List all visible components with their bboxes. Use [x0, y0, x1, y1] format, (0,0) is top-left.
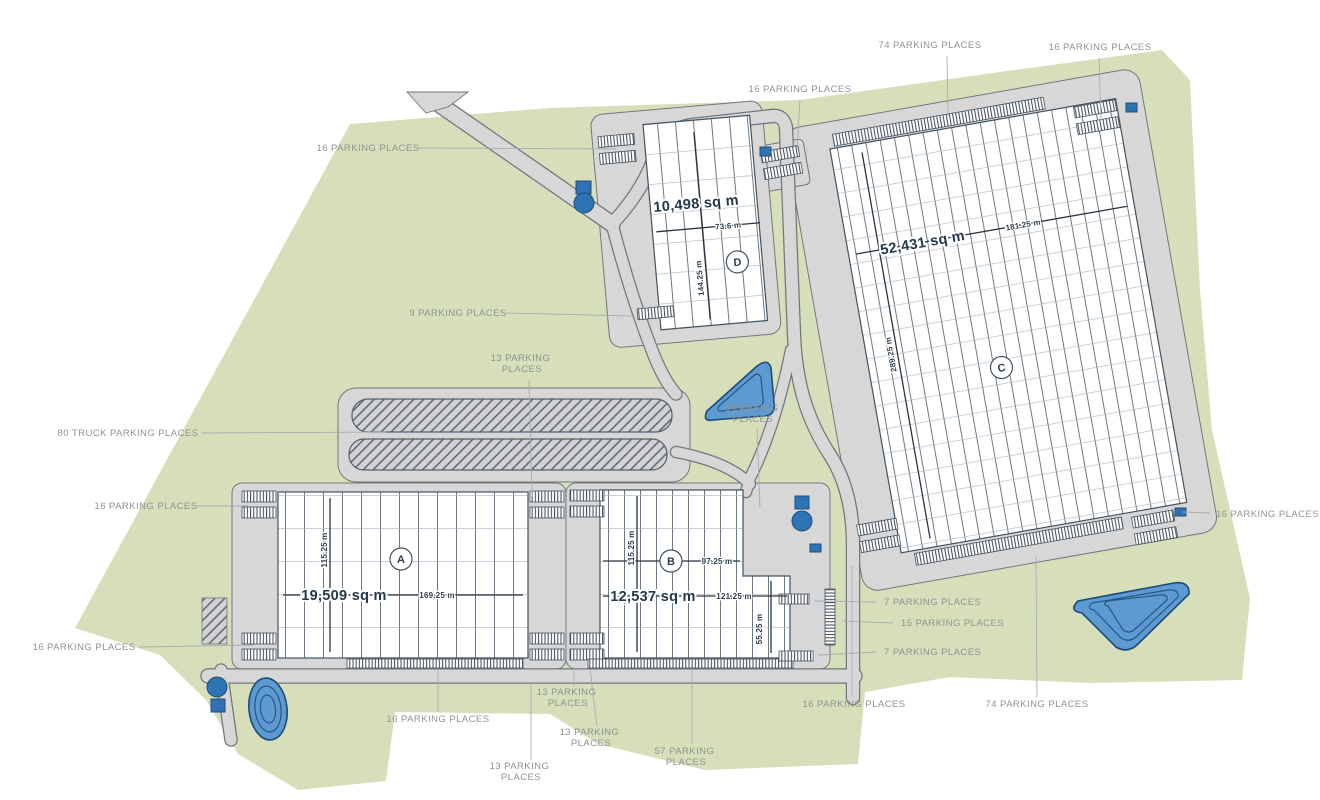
annotation-label: 16 PARKING PLACES — [802, 699, 905, 710]
annotation-label: 16 PARKING PLACES — [316, 143, 419, 154]
annotation-line2: PLACES — [501, 772, 541, 783]
annotation-label: 16 PARKING PLACES — [94, 501, 197, 512]
hydrant-marker — [760, 147, 771, 156]
annotation-line2: PLACES — [733, 414, 773, 425]
building-a-area: 19,509 sq m — [301, 588, 387, 604]
annotation-line2: PLACES — [502, 364, 542, 375]
annotation-label: 16 PARKING PLACES — [1048, 42, 1151, 53]
tank-marker — [576, 181, 591, 194]
building-b-depth: 115.25 m — [627, 531, 636, 566]
annotation-label: 16 PARKING PLACES — [1216, 509, 1319, 520]
hydrant-marker — [810, 544, 821, 552]
annotation-label: 16 PARKING PLACES — [748, 84, 851, 95]
building-b-wing-depth: 55.25 m — [755, 614, 764, 645]
building-a-length: 169.25 m — [419, 591, 454, 600]
pump-marker — [207, 677, 227, 697]
building-a-depth: 115.25 m — [320, 533, 329, 568]
annotation-line1: 13 PARKING — [490, 761, 550, 772]
annotation-line1: 6 PARKING — [724, 403, 778, 414]
reserved-hatch-area — [202, 598, 227, 644]
annotation-line1: 13 PARKING — [491, 353, 551, 364]
pump-marker — [574, 193, 594, 213]
building-b-mid-length: 97.25 m — [702, 557, 733, 566]
annotation-label: 74 PARKING PLACES — [878, 40, 981, 51]
annotation-label: 16 PARKING PLACES — [32, 642, 135, 653]
annotation-label: 16 PARKING PLACES — [386, 714, 489, 725]
hydrant-marker — [1126, 103, 1137, 112]
annotation-label: 7 PARKING PLACES — [884, 647, 981, 658]
annotation-line2: PLACES — [548, 698, 588, 709]
tank-marker — [795, 496, 809, 509]
tank-marker — [211, 699, 225, 712]
annotation-label: 13 PARKING PLACES — [490, 761, 553, 783]
annotation-line2: PLACES — [666, 757, 706, 768]
site-plan-canvas: 115.25 m 19,509 sq m 169.25 m A 115.25 m… — [0, 0, 1320, 800]
annotation-line1: 13 PARKING — [560, 727, 620, 738]
building-b-length: 121.25 m — [716, 592, 751, 601]
building-a-letter: A — [397, 554, 405, 566]
annotation-label: 9 PARKING PLACES — [409, 308, 506, 319]
annotation-line2: PLACES — [571, 738, 611, 749]
building-b-letter: B — [667, 556, 675, 568]
annotation-label: 80 TRUCK PARKING PLACES — [58, 428, 199, 439]
site-plan: 115.25 m 19,509 sq m 169.25 m A 115.25 m… — [0, 0, 1320, 800]
pump-marker — [792, 511, 812, 531]
building-d-letter: D — [733, 257, 742, 270]
annotation-line1: 13 PARKING — [537, 687, 597, 698]
annotation-line1: 57 PARKING — [655, 746, 715, 757]
building-a: 115.25 m 19,509 sq m 169.25 m A — [242, 491, 564, 668]
annotation-label: 7 PARKING PLACES — [884, 597, 981, 608]
building-b-area: 12,537 sq m — [610, 589, 696, 605]
annotation-label: 74 PARKING PLACES — [985, 699, 1088, 710]
annotation-label: 6 PARKING PLACES — [724, 403, 781, 425]
annotation-label: 15 PARKING PLACES — [901, 618, 1004, 629]
